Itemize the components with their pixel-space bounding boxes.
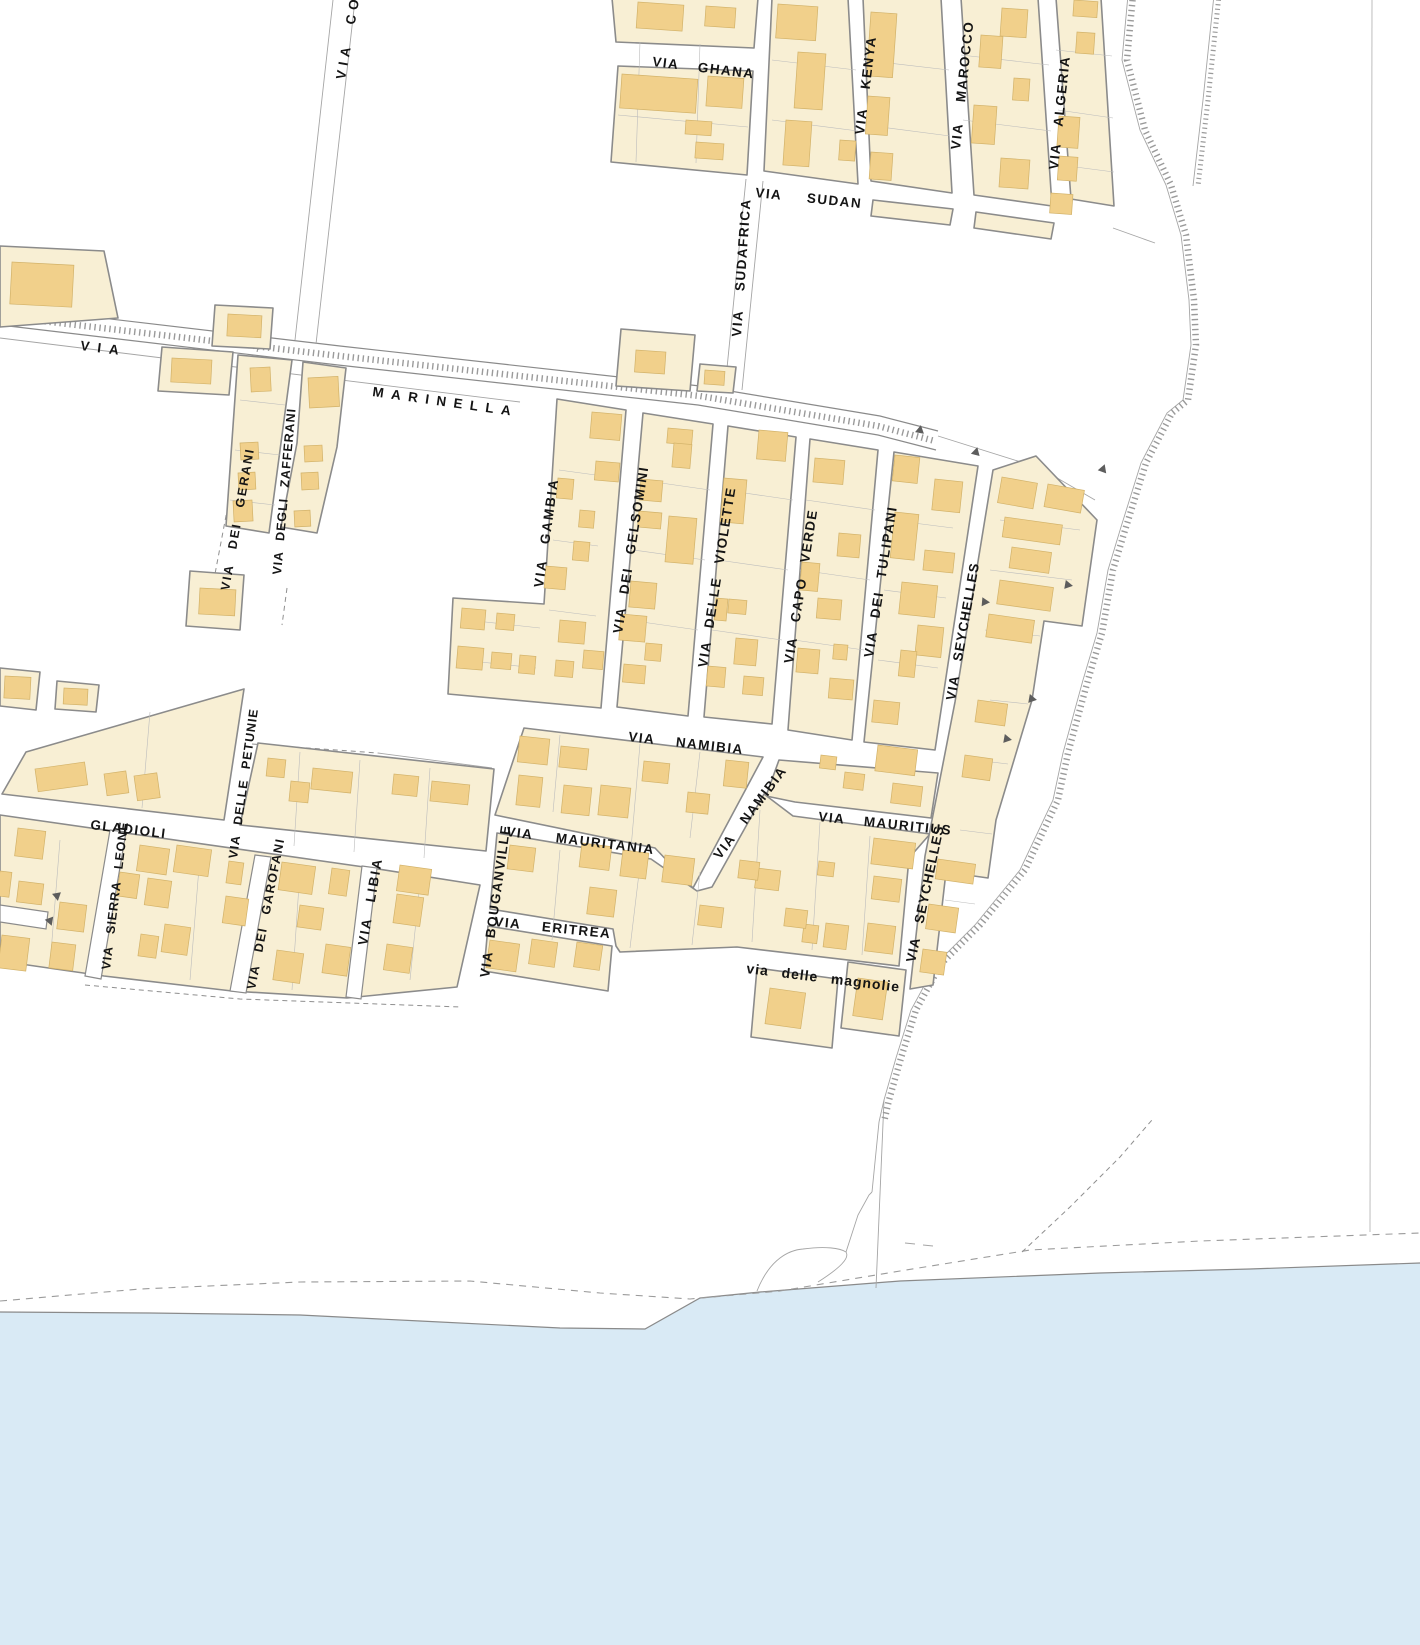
building (738, 860, 760, 880)
boundary-line-right (1370, 0, 1372, 1232)
building (393, 894, 424, 926)
beach-path-line (872, 1100, 884, 1288)
building (456, 646, 484, 670)
river-mouth-outline (757, 1192, 872, 1291)
building (898, 650, 917, 678)
building (226, 861, 244, 885)
building (57, 902, 87, 932)
building (598, 785, 631, 818)
building (686, 792, 710, 814)
building (222, 896, 249, 926)
building (920, 949, 947, 975)
building (723, 760, 749, 788)
building (975, 700, 1008, 726)
building (10, 262, 74, 307)
building (396, 865, 431, 895)
building (16, 881, 43, 905)
building (962, 755, 993, 781)
building (784, 908, 808, 929)
sea-water (0, 1263, 1420, 1645)
water-polygon (0, 1263, 1420, 1645)
building (1000, 8, 1028, 38)
building (979, 35, 1003, 68)
building (892, 455, 920, 483)
building (1050, 193, 1073, 214)
building (555, 660, 574, 678)
building (999, 158, 1030, 189)
building (250, 367, 271, 392)
building (833, 644, 848, 660)
building (839, 140, 856, 161)
triangle-marker (971, 446, 982, 456)
building (308, 376, 340, 408)
building (430, 781, 470, 805)
building (311, 768, 353, 793)
building (869, 152, 893, 180)
building (1012, 78, 1029, 101)
coast-detail (0, 962, 1420, 1301)
building (622, 664, 645, 684)
parcel-block (974, 212, 1054, 239)
building (665, 516, 697, 564)
building (301, 472, 319, 490)
street-label-via-marinella-via: VIA (80, 338, 128, 359)
building (636, 2, 684, 31)
building (728, 599, 747, 615)
building (734, 638, 758, 666)
parcel-block (2, 689, 244, 820)
building (138, 934, 159, 958)
building (297, 905, 324, 930)
building (516, 775, 543, 807)
city-map: VIA CO VIA GHANA VIA KENYA VIA MAROCCO V… (0, 0, 1420, 1645)
building (594, 461, 620, 482)
building (685, 120, 712, 136)
building (266, 758, 286, 778)
building (328, 868, 349, 896)
building (642, 761, 670, 784)
building (63, 688, 88, 705)
building (507, 845, 536, 872)
building (579, 510, 595, 528)
building (796, 648, 820, 674)
embankment-branch-hatch (1198, 0, 1219, 186)
building (926, 904, 959, 933)
map-canvas: VIA CO VIA GHANA VIA KENYA VIA MAROCCO V… (0, 0, 1420, 1645)
building (923, 550, 955, 573)
street-label-via-co: VIA CO (333, 0, 363, 81)
building (932, 479, 963, 513)
building (161, 924, 191, 955)
building (529, 939, 558, 967)
building (828, 678, 854, 700)
embankment-branch-line (1193, 0, 1214, 186)
building (843, 772, 865, 790)
building (561, 785, 592, 816)
building (756, 430, 787, 461)
building (227, 314, 262, 338)
street-label-via-sudafrica: VIA SUDAFRICA (729, 198, 754, 337)
building (136, 845, 169, 875)
parcel-block (871, 200, 953, 225)
dune-dashed-line (1022, 1120, 1152, 1252)
building (590, 412, 622, 441)
building (695, 142, 724, 160)
building (104, 771, 129, 796)
marinella-edge-bottom (0, 325, 936, 450)
building (587, 887, 617, 917)
building (645, 643, 662, 661)
building (558, 620, 586, 644)
building (0, 935, 30, 971)
building (273, 950, 304, 983)
building (1073, 0, 1098, 18)
building (134, 773, 160, 801)
building (823, 923, 849, 950)
building (4, 676, 31, 699)
building (819, 755, 836, 770)
building (582, 650, 603, 670)
building (289, 781, 310, 803)
building (915, 625, 944, 658)
building (15, 828, 46, 859)
building (294, 510, 311, 527)
building (875, 745, 918, 776)
building (891, 783, 923, 807)
building (173, 845, 211, 877)
building (871, 838, 916, 869)
via-sudan-extension-line (1113, 228, 1155, 243)
marinella-roadbed (0, 306, 938, 450)
building (460, 608, 486, 630)
building (813, 458, 845, 485)
building (662, 855, 695, 885)
building (491, 652, 512, 670)
building (634, 350, 665, 374)
building (706, 76, 744, 108)
building (278, 862, 316, 894)
building (171, 358, 212, 384)
building (776, 4, 818, 41)
building (871, 876, 902, 902)
building (899, 582, 938, 618)
building (518, 655, 536, 674)
building (971, 105, 997, 145)
parcel-block (612, 0, 758, 48)
building (865, 923, 896, 954)
building (629, 581, 657, 609)
building (304, 445, 323, 462)
building (817, 861, 835, 877)
building (783, 120, 812, 167)
triangle-marker (1098, 463, 1109, 474)
building (517, 736, 550, 765)
street-label-via-sudan: VIA SUDAN (755, 185, 863, 211)
building (322, 944, 351, 976)
building (667, 428, 693, 445)
building (49, 942, 76, 971)
building (698, 905, 724, 928)
building (1076, 32, 1095, 54)
building (572, 541, 590, 561)
building (383, 944, 412, 973)
building (559, 746, 589, 770)
building (144, 878, 172, 908)
building (672, 443, 692, 468)
building (837, 533, 861, 558)
building (392, 774, 419, 797)
street-label-marinella: MARINELLA (372, 384, 520, 419)
building (620, 74, 698, 113)
building (765, 988, 806, 1029)
building (794, 52, 826, 110)
building (816, 598, 842, 620)
building (704, 370, 725, 385)
building (705, 6, 736, 28)
building (742, 676, 763, 696)
building (496, 613, 515, 631)
zafferani-south-dashes (282, 588, 287, 625)
building (574, 942, 603, 970)
building (872, 700, 900, 725)
